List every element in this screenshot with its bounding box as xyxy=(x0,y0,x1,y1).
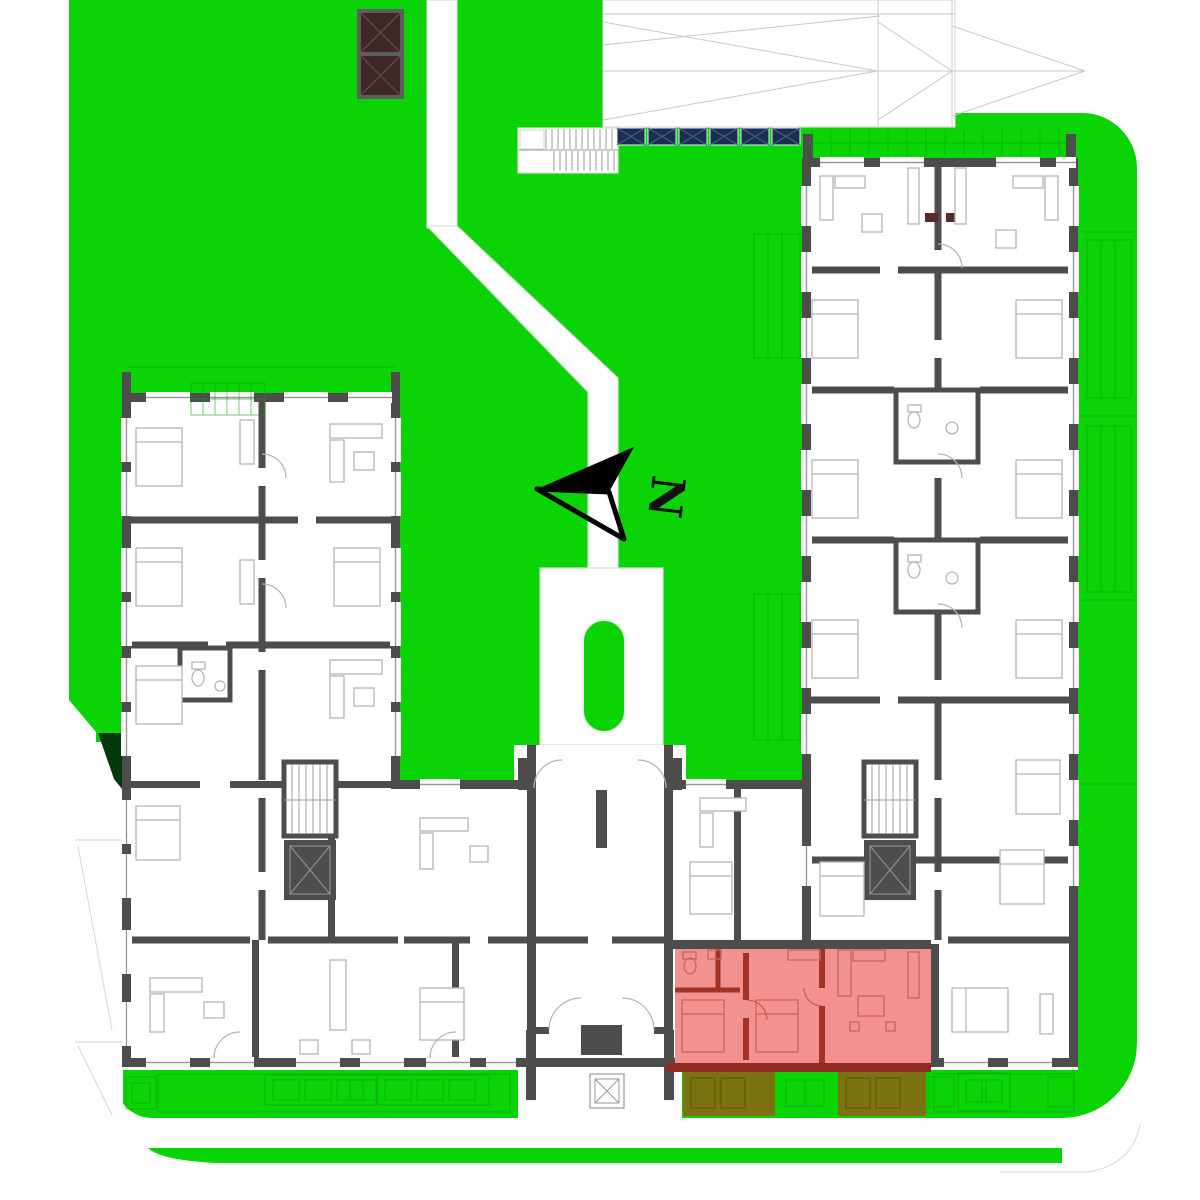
planting-island xyxy=(583,620,625,732)
external-staircase xyxy=(518,128,618,173)
site-plan: N xyxy=(0,0,1200,1200)
site-plan-canvas: N xyxy=(0,0,1200,1200)
roof-hatch-structure xyxy=(357,9,404,99)
entry-grate-icon xyxy=(590,1074,624,1108)
unit-balcony-slab xyxy=(666,1063,931,1072)
highlighted-unit[interactable] xyxy=(666,949,931,1072)
adjacent-roof-outline xyxy=(603,0,1137,127)
hedge-band xyxy=(148,1148,1062,1163)
north-label: N xyxy=(637,473,696,521)
entrance-mullion xyxy=(581,1025,622,1055)
